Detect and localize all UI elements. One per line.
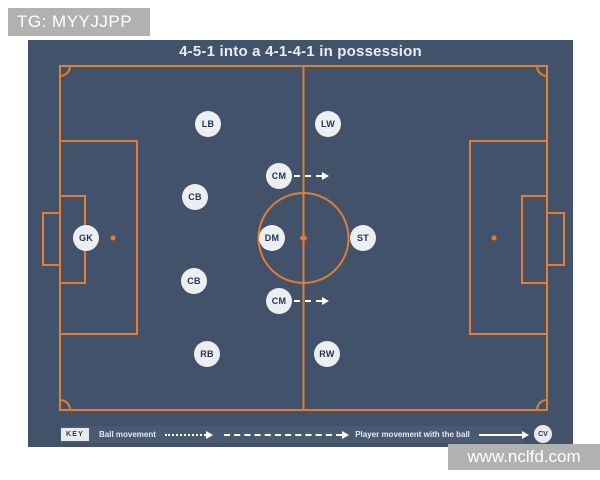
player-marker-rb: RB bbox=[194, 341, 220, 367]
pitch-markings bbox=[28, 40, 573, 447]
key-legend-bar: KEY Ball movement Player movement with t… bbox=[60, 426, 522, 443]
corner-arc bbox=[60, 400, 70, 410]
ball-movement-arrow-icon bbox=[165, 434, 206, 436]
watermark-top-left: TG: MYYJJPP bbox=[8, 8, 150, 36]
player-marker-rw: RW bbox=[314, 341, 340, 367]
player-marker-lw: LW bbox=[315, 111, 341, 137]
right-penalty-spot bbox=[492, 236, 497, 241]
corner-arc bbox=[537, 400, 547, 410]
player-marker-dm: DM bbox=[259, 225, 285, 251]
corner-arc bbox=[60, 66, 70, 76]
player-movement-label: Player movement with the ball bbox=[355, 430, 470, 439]
corner-arc bbox=[537, 66, 547, 76]
right-penalty-area bbox=[470, 141, 547, 334]
tactics-diagram: 4-5-1 into a 4-1-4-1 in possession GKLBC… bbox=[28, 40, 573, 447]
page: { "watermarks": { "top": "TG: MYYJJPP", … bbox=[0, 0, 600, 480]
player-marker-lb: LB bbox=[195, 111, 221, 137]
player-marker-gk: GK bbox=[73, 225, 99, 251]
movement-with-ball-arrow-icon bbox=[479, 434, 522, 436]
player-marker-cm: CM bbox=[266, 163, 292, 189]
player-movement-arrow-icon bbox=[224, 434, 342, 436]
left-goal bbox=[43, 213, 60, 265]
player-movement-arrow bbox=[294, 300, 322, 302]
player-marker-cb: CB bbox=[182, 184, 208, 210]
centre-spot bbox=[300, 234, 308, 242]
player-marker-st: ST bbox=[350, 225, 376, 251]
cv-badge: CV bbox=[534, 425, 552, 443]
left-penalty-spot bbox=[111, 236, 116, 241]
right-goal-area bbox=[522, 196, 547, 283]
player-marker-cb: CB bbox=[181, 268, 207, 294]
key-label: KEY bbox=[61, 428, 89, 441]
watermark-bottom-right: www.nclfd.com bbox=[448, 444, 600, 470]
player-movement-arrow bbox=[294, 175, 322, 177]
ball-movement-label: Ball movement bbox=[99, 430, 156, 439]
right-goal bbox=[547, 213, 564, 265]
player-marker-cm: CM bbox=[266, 288, 292, 314]
